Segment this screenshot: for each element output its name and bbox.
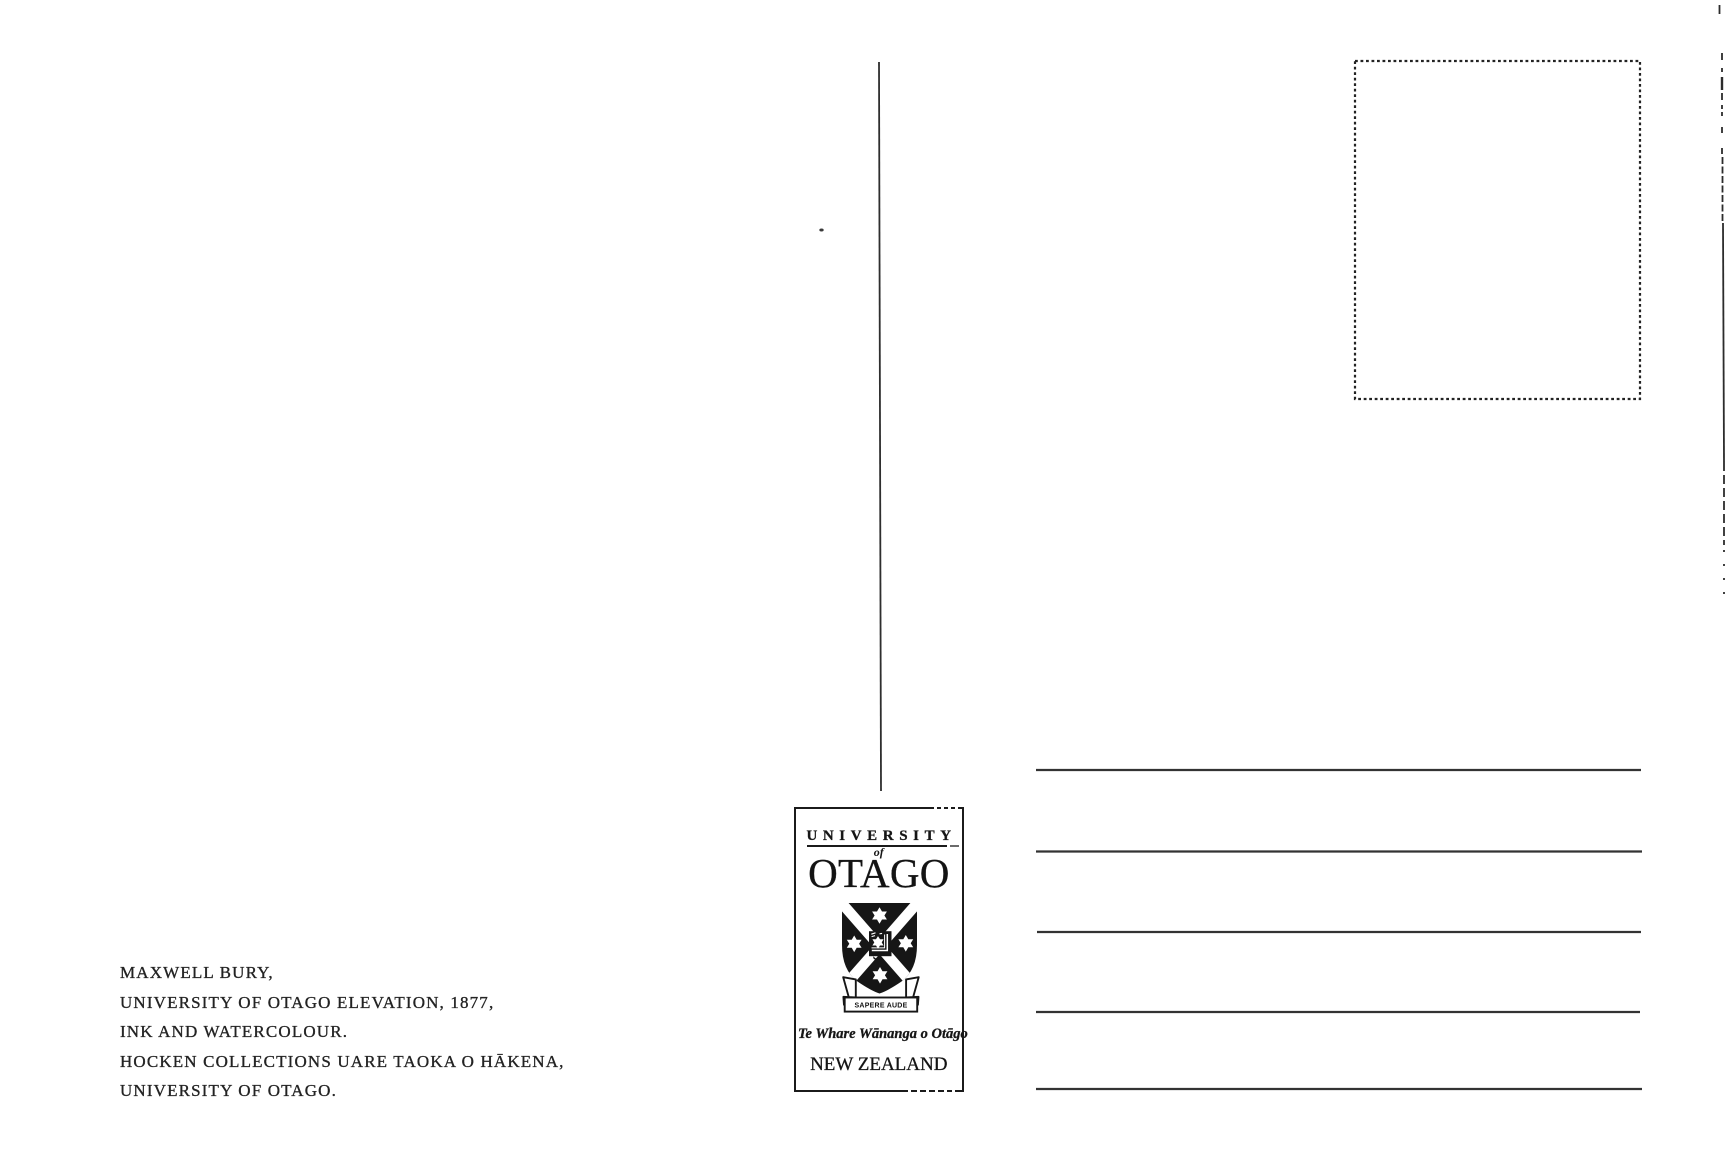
svg-text:SAPERE AUDE: SAPERE AUDE bbox=[854, 1003, 907, 1010]
